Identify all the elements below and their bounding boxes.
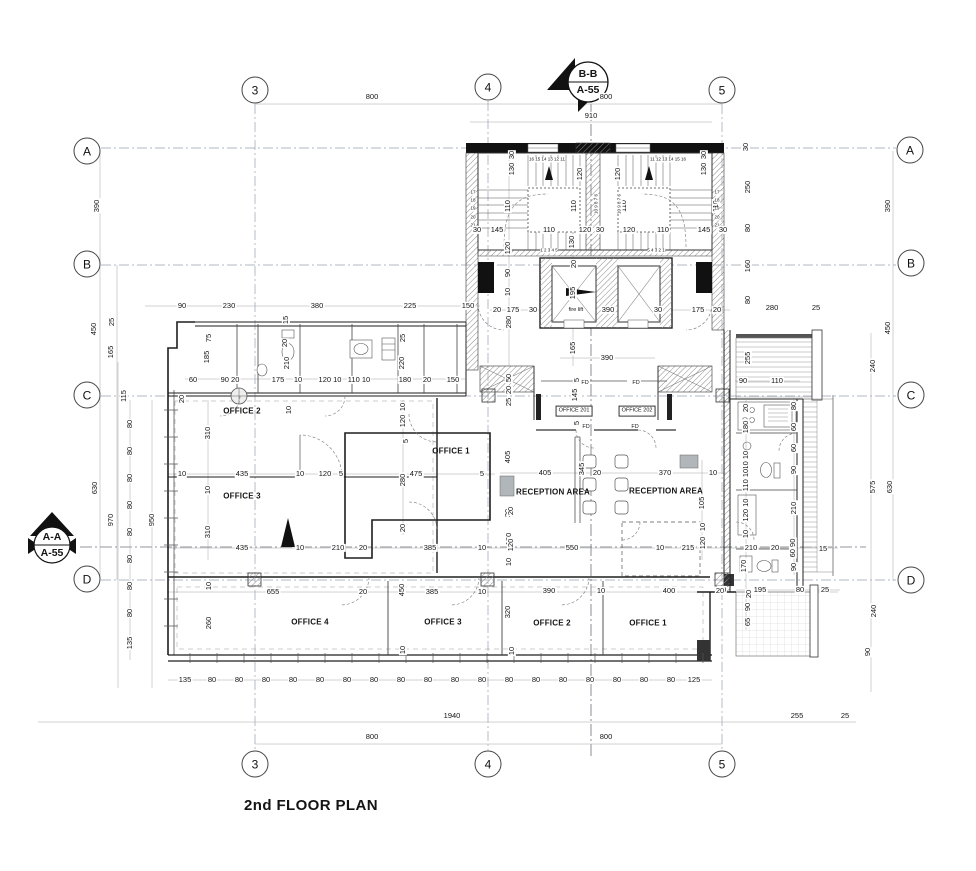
dimension-label: 240 xyxy=(870,604,878,619)
dimension-label: 210 xyxy=(744,544,759,552)
section-marker-label: B-B xyxy=(578,69,599,81)
dimension-label: 30 xyxy=(472,226,482,234)
dimension-label: FD xyxy=(631,380,640,386)
dimension-label: 80 xyxy=(126,527,134,537)
dimension-label: 20 xyxy=(770,544,780,552)
dimension-label: 405 xyxy=(504,450,512,465)
dimension-label: 260 xyxy=(205,616,213,631)
dimension-label: 90 xyxy=(738,377,748,385)
dimension-label: 195 xyxy=(569,286,577,301)
dimension-label: 30 xyxy=(595,226,605,234)
dimension-label: 80 xyxy=(207,676,217,684)
dimension-label: 10 xyxy=(708,469,718,477)
dimension-label: 80 xyxy=(744,295,752,305)
dimension-label: 165 xyxy=(107,345,115,360)
dimension-label: 5 xyxy=(573,420,581,426)
dimension-label: 215 xyxy=(681,544,696,552)
dimension-label: 90 xyxy=(790,562,798,572)
dimension-label: 25 xyxy=(399,333,407,343)
dimension-label: 120 xyxy=(614,167,622,182)
dimension-label: 185 xyxy=(203,350,211,365)
dimension-label: 10 xyxy=(742,529,750,539)
drawing-title: 2nd FLOOR PLAN xyxy=(243,798,379,815)
dimension-label: 110 xyxy=(656,226,670,234)
dimension-label: 25 xyxy=(811,304,821,312)
dimension-label: 10 xyxy=(596,587,606,595)
dimension-label: 20 xyxy=(742,403,750,413)
dimension-label: 130 xyxy=(700,162,708,177)
dimension-label: 17 xyxy=(714,191,719,196)
dimension-label: 80 xyxy=(126,554,134,564)
dimension-label: 90 xyxy=(504,268,512,278)
dimension-label: 60 xyxy=(790,443,798,453)
room-label: OFFICE 2 xyxy=(222,408,262,417)
dimension-label: 30 xyxy=(653,306,663,314)
dimension-label: 30 xyxy=(742,142,750,152)
room-label: OFFICE 3 xyxy=(222,493,262,502)
room-label: RECEPTION AREA xyxy=(515,489,591,498)
dimension-label: 110 xyxy=(770,377,784,385)
dimension-label: 11 12 13 14 15 16 xyxy=(650,158,686,163)
dimension-label: 120 xyxy=(318,470,333,478)
dimension-label: 18 xyxy=(470,199,475,204)
dimension-label: 180 xyxy=(742,420,750,435)
dimension-label: 10 xyxy=(293,376,303,384)
dimension-label: 390 xyxy=(542,587,557,595)
room-label: OFFICE 2 xyxy=(532,620,572,629)
dimension-label: 435 xyxy=(235,470,250,478)
dimension-label: 390 xyxy=(884,199,892,214)
dimension-label: 385 xyxy=(423,544,438,552)
dimension-label: 20 xyxy=(714,216,719,221)
dimension-label: 110 10 xyxy=(347,376,371,384)
dimension-label: 310 xyxy=(204,426,212,441)
dimension-label: 5 xyxy=(338,470,344,478)
dimension-label: 195 xyxy=(753,586,768,594)
dimension-label: 150 xyxy=(446,376,461,384)
dimension-label: 950 xyxy=(148,513,156,528)
dimension-label: 10 xyxy=(477,544,487,552)
dimension-label: 20 xyxy=(712,306,722,314)
dimension-label: 280 xyxy=(399,473,407,488)
dimension-label: 145 xyxy=(490,226,505,234)
dimension-label: 1940 xyxy=(443,712,462,720)
dimension-label: 390 xyxy=(93,199,101,214)
dimension-label: 210 xyxy=(790,501,798,516)
dimension-label: 90 xyxy=(790,465,798,475)
dimension-label: 20 xyxy=(592,469,602,477)
dimension-label: 16 15 14 13 12 11 xyxy=(529,158,565,163)
dimension-label: 115 xyxy=(120,389,128,403)
dimension-label: 20 xyxy=(178,394,186,404)
dimension-label: 90 xyxy=(744,602,752,612)
dimension-label: 30 xyxy=(700,150,708,160)
dimension-label: 80 xyxy=(450,676,460,684)
dimension-label: 910 xyxy=(584,112,599,120)
dimension-label: 165 xyxy=(569,341,577,356)
dimension-label: 630 xyxy=(91,481,99,496)
dimension-label: 450 xyxy=(884,321,892,336)
dimension-label: 80 xyxy=(126,500,134,510)
room-label: OFFICE 1 xyxy=(628,620,668,629)
dimension-label: 110 xyxy=(504,199,512,213)
dimension-label: 175 xyxy=(691,306,706,314)
dimension-label: 80 xyxy=(477,676,487,684)
room-tag: OFFICE 202 xyxy=(619,406,656,417)
dimension-label: 120 xyxy=(507,538,515,553)
dimension-label: 220 xyxy=(398,356,406,371)
dimension-label: 80 xyxy=(396,676,406,684)
dimension-label: 120 xyxy=(578,226,593,234)
dimension-label: 19 xyxy=(470,207,475,212)
dimension-label: 20 xyxy=(422,376,432,384)
dimension-label: 180 xyxy=(398,376,413,384)
dimension-label: 370 xyxy=(658,469,673,477)
dimension-label: 17 xyxy=(470,191,475,196)
dimension-label: 25 xyxy=(820,586,830,594)
dimension-label: 50 xyxy=(505,373,513,383)
dimension-label: 20 xyxy=(570,259,578,269)
dimension-label: 450 xyxy=(398,583,406,598)
dimension-label: 255 xyxy=(744,351,752,366)
dimension-label: 30 xyxy=(508,150,516,160)
dimension-label: 20 xyxy=(358,544,368,552)
dimension-label: 800 xyxy=(599,733,614,741)
dimension-label: 80 xyxy=(795,586,805,594)
label-layer: 800800910B-BA-55A-AA-5530130301301201201… xyxy=(0,0,976,871)
dimension-label: fire lift xyxy=(568,307,585,313)
dimension-label: 80 xyxy=(126,608,134,618)
dimension-label: 20 xyxy=(715,587,725,595)
dimension-label: 110 xyxy=(542,226,556,234)
room-tag: OFFICE 201 xyxy=(556,406,593,417)
room-label: RECEPTION AREA xyxy=(628,488,704,497)
dimension-label: 30 xyxy=(528,306,538,314)
dimension-label: 30 xyxy=(718,226,728,234)
dimension-label: 80 xyxy=(504,676,514,684)
dimension-label: FD xyxy=(580,380,589,386)
dimension-label: 450 xyxy=(90,322,98,337)
dimension-label: 280 xyxy=(765,304,780,312)
dimension-label: 10 xyxy=(504,287,512,297)
dimension-label: 145 xyxy=(571,388,579,403)
dimension-label: 320 xyxy=(504,605,512,620)
dimension-label: 250 xyxy=(744,180,752,195)
dimension-label: 15 xyxy=(818,545,828,553)
dimension-label: 210 xyxy=(331,544,346,552)
dimension-label: 120 xyxy=(504,241,512,256)
dimension-label: 575 xyxy=(869,480,877,495)
dimension-label: 90 xyxy=(177,302,187,310)
dimension-label: 80 xyxy=(126,419,134,429)
dimension-label: 90 20 xyxy=(220,376,241,384)
dimension-label: 80 xyxy=(558,676,568,684)
dimension-label: 310 xyxy=(204,525,212,540)
dimension-label: 20 xyxy=(492,306,502,314)
dimension-label: 75 xyxy=(205,333,213,343)
dimension-label: 225 xyxy=(403,302,418,310)
dimension-label: 5 4 3 2 1 xyxy=(647,249,665,254)
dimension-label: 475 xyxy=(409,470,424,478)
dimension-label: 5 xyxy=(479,470,485,478)
dimension-label: 230 xyxy=(222,302,237,310)
dimension-label: 175 xyxy=(271,376,286,384)
dimension-label: 80 xyxy=(369,676,379,684)
dimension-label: 20 xyxy=(358,588,368,596)
dimension-label: 10 xyxy=(205,581,213,591)
dimension-label: 380 xyxy=(310,302,325,310)
section-marker-label: A-A xyxy=(42,532,63,544)
dimension-label: 10 xyxy=(177,470,187,478)
dimension-label: 110 xyxy=(570,199,578,213)
dimension-label: 10 xyxy=(295,544,305,552)
dimension-label: 135 xyxy=(178,676,193,684)
dimension-label: 110 10 xyxy=(742,468,750,492)
dimension-label: 19 xyxy=(714,207,719,212)
section-marker-label: A-55 xyxy=(40,548,65,560)
dimension-label: 80 xyxy=(423,676,433,684)
dimension-label: 390 xyxy=(600,354,615,362)
dimension-label: 405 xyxy=(538,469,553,477)
dimension-label: 10 xyxy=(508,646,516,656)
dimension-label: 25 xyxy=(840,712,850,720)
dimension-label: 800 xyxy=(365,93,380,101)
dimension-label: 15 xyxy=(282,315,290,325)
dimension-label: 20 xyxy=(505,385,513,395)
dimension-label: 280 xyxy=(505,315,513,330)
dimension-label: 10 xyxy=(399,645,407,655)
dimension-label: 1 2 3 4 5 xyxy=(540,249,558,254)
dimension-label: 18 xyxy=(714,199,719,204)
dimension-label: 10 9 8 7 6 xyxy=(595,194,600,214)
dimension-label: 60 xyxy=(188,376,198,384)
dimension-label: 80 xyxy=(126,473,134,483)
room-label: OFFICE 3 xyxy=(423,619,463,628)
dimension-label: 120 xyxy=(699,536,707,551)
floor-plan-canvas: 345345ABCDABCD 800800910B-BA-55A-AA-5530… xyxy=(0,0,976,871)
dimension-label: 120 10 xyxy=(742,498,750,523)
dimension-label: 80 xyxy=(666,676,676,684)
dimension-label: 25 xyxy=(505,397,513,407)
dimension-label: 5 xyxy=(402,438,410,444)
dimension-label: 90 xyxy=(864,647,872,657)
dimension-label: 170 xyxy=(740,559,748,574)
dimension-label: 150 xyxy=(461,302,476,310)
dimension-label: 10 xyxy=(285,405,293,415)
section-marker-label: A-55 xyxy=(576,85,601,97)
dimension-label: FD xyxy=(581,424,590,430)
dimension-label: 65 xyxy=(744,617,752,627)
dimension-label: 120 xyxy=(622,226,637,234)
dimension-label: 10 xyxy=(699,522,707,532)
dimension-label: 80 xyxy=(531,676,541,684)
dimension-label: 10 9 8 7 6 xyxy=(618,194,623,214)
dimension-label: 80 xyxy=(639,676,649,684)
dimension-label: 60 90 xyxy=(789,538,797,559)
dimension-label: 80 xyxy=(126,581,134,591)
dimension-label: 125 xyxy=(687,676,702,684)
dimension-label: 655 xyxy=(266,588,281,596)
dimension-label: 80 xyxy=(790,401,798,411)
dimension-label: 240 xyxy=(869,359,877,374)
dimension-label: 160 xyxy=(744,259,752,274)
dimension-label: 25 xyxy=(108,317,116,327)
dimension-label: 80 xyxy=(234,676,244,684)
dimension-label: 20 xyxy=(399,523,407,533)
room-label: OFFICE 4 xyxy=(290,619,330,628)
dimension-label: 80 xyxy=(126,446,134,456)
dimension-label: 80 xyxy=(585,676,595,684)
dimension-label: 10 xyxy=(295,470,305,478)
dimension-label: FD xyxy=(630,424,639,430)
dimension-label: 20 xyxy=(470,216,475,221)
dimension-label: 10 xyxy=(399,402,407,412)
dimension-label: 80 xyxy=(342,676,352,684)
dimension-label: 630 xyxy=(886,480,894,495)
dimension-label: 80 xyxy=(744,223,752,233)
dimension-label: 435 xyxy=(235,544,250,552)
dimension-label: 20 xyxy=(281,338,289,348)
dimension-label: 120 xyxy=(576,167,584,182)
dimension-label: 550 xyxy=(565,544,580,552)
dimension-label: 135 xyxy=(126,636,134,651)
dimension-label: 210 xyxy=(283,356,291,371)
dimension-label: 345 xyxy=(578,462,586,477)
dimension-label: 385 xyxy=(425,588,440,596)
dimension-label: 800 xyxy=(599,93,614,101)
dimension-label: 10 xyxy=(477,588,487,596)
dimension-label: 20 xyxy=(745,589,753,599)
dimension-label: 10 xyxy=(505,557,513,567)
dimension-label: 120 10 xyxy=(318,376,343,384)
dimension-label: 10 xyxy=(655,544,665,552)
dimension-label: 105 xyxy=(698,496,706,511)
dimension-label: 970 xyxy=(107,513,115,528)
dimension-label: 130 xyxy=(568,235,576,250)
dimension-label: 120 xyxy=(399,414,407,429)
dimension-label: 80 xyxy=(315,676,325,684)
dimension-label: 80 xyxy=(288,676,298,684)
room-label: OFFICE 1 xyxy=(431,448,471,457)
dimension-label: 10 xyxy=(204,485,212,495)
dimension-label: 390 xyxy=(601,306,616,314)
dimension-label: 130 xyxy=(508,162,516,177)
dimension-label: 80 xyxy=(612,676,622,684)
dimension-label: 800 xyxy=(365,733,380,741)
dimension-label: 400 xyxy=(662,587,677,595)
dimension-label: 175 xyxy=(506,306,521,314)
dimension-label: 255 xyxy=(790,712,805,720)
dimension-label: 20 xyxy=(507,506,515,516)
dimension-label: 80 xyxy=(261,676,271,684)
dimension-label: 145 xyxy=(697,226,712,234)
dimension-label: 60 xyxy=(790,422,798,432)
